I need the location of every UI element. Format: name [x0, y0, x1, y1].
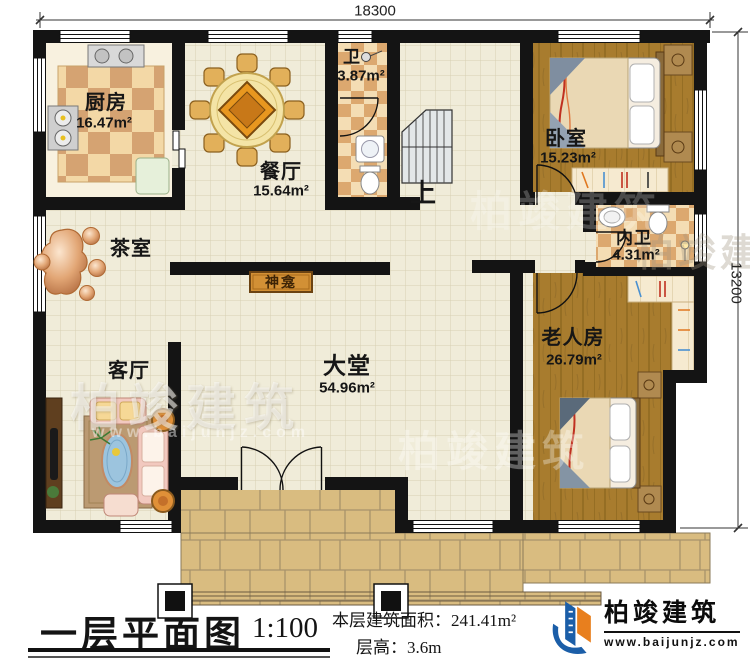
tv-icon	[50, 428, 58, 480]
room-area-hall: 54.96m²	[319, 381, 375, 396]
plant-icon	[47, 486, 59, 498]
floor-area-value: 241.41m²	[451, 611, 516, 630]
room-area-kitchen: 16.47m²	[76, 116, 132, 131]
window-top-bath	[338, 31, 372, 43]
ottoman	[104, 494, 138, 516]
nightstand	[638, 372, 661, 398]
floor-plan-sheet: 柏竣建筑 www.baijunjz.com 柏竣建筑 柏竣建筑 柏竣建筑 厨房 …	[0, 0, 750, 670]
title-underline-thin	[28, 656, 330, 658]
room-area-dining: 15.64m²	[253, 184, 309, 199]
floor-height-value: 3.6m	[407, 638, 441, 657]
floor-area-label: 本层建筑面积：	[332, 611, 451, 630]
nightstand	[638, 486, 661, 512]
room-area-elder-room: 26.79m²	[546, 353, 602, 368]
sheet-scale: 1:100	[252, 612, 318, 645]
room-area-bedroom: 15.23m²	[540, 151, 596, 166]
room-label-elder-room: 老人房	[542, 328, 605, 348]
room-label-hall: 大堂	[323, 355, 371, 378]
room-label-bath: 卫	[343, 49, 361, 66]
window-bottom-elder	[558, 521, 640, 533]
brand-block: 柏竣建筑 www.baijunjz.com	[546, 598, 740, 658]
room-area-ensuite: 4.31m²	[612, 248, 660, 263]
nightstand	[664, 132, 692, 162]
dimension-top: 18300	[354, 4, 396, 19]
dining-table-set	[190, 54, 304, 166]
floor-height-row: 层高：3.6m	[356, 633, 441, 658]
floor-area-row: 本层建筑面积：241.41m²	[332, 606, 516, 631]
room-label-ensuite: 内卫	[616, 230, 652, 247]
window-bottom-living	[120, 521, 172, 533]
room-label-kitchen: 厨房	[85, 93, 127, 113]
floor-height-label: 层高：	[356, 638, 407, 657]
window-top-bedroom	[558, 31, 640, 43]
fridge-icon	[136, 158, 169, 194]
window-top-dining	[208, 31, 288, 43]
stairs-up-label: 上	[410, 180, 436, 206]
shrine-label: 神龛	[265, 275, 297, 289]
room-label-bedroom: 卧室	[545, 129, 587, 149]
window-bottom-hall	[413, 521, 493, 533]
title-underline-thick	[28, 648, 330, 652]
brand-name: 柏竣建筑	[604, 598, 740, 628]
washbasin-icon	[599, 207, 625, 227]
window-right-ensuite	[695, 214, 707, 262]
room-label-tea-room: 茶室	[110, 239, 152, 259]
room-label-dining: 餐厅	[260, 162, 302, 182]
window-top-kitchen	[60, 31, 130, 43]
brand-website: www.baijunjz.com	[604, 631, 740, 649]
dimension-right: 13200	[729, 262, 744, 304]
room-area-bath: 3.87m²	[337, 69, 385, 84]
nightstand	[664, 45, 692, 75]
stove-icon	[48, 106, 78, 150]
room-label-living-room: 客厅	[108, 361, 150, 381]
brand-logo-icon	[546, 598, 598, 658]
window-left-kitchen	[34, 58, 46, 132]
toilet-icon	[360, 166, 380, 194]
window-right-bedroom	[695, 90, 707, 170]
